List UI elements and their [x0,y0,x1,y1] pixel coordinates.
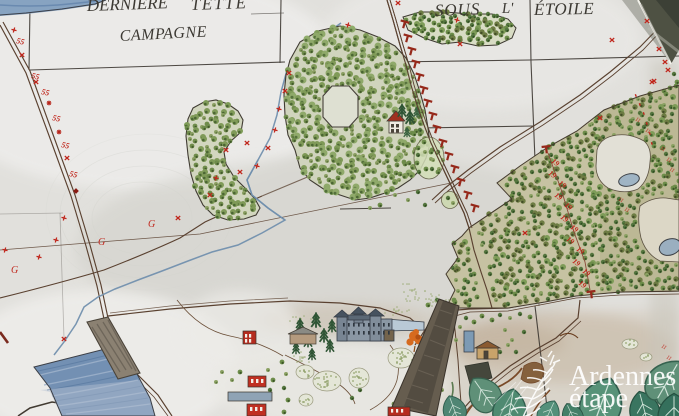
svg-text:TETTE: TETTE [190,0,247,14]
svg-text:SOUS: SOUS [434,0,480,20]
svg-text:ÉTOILE: ÉTOILE [533,0,595,19]
svg-text:étape: étape [569,383,628,414]
svg-text:L': L' [501,1,515,17]
svg-text:G: G [98,237,105,248]
svg-text:G: G [11,265,18,276]
svg-text:G: G [148,219,155,230]
